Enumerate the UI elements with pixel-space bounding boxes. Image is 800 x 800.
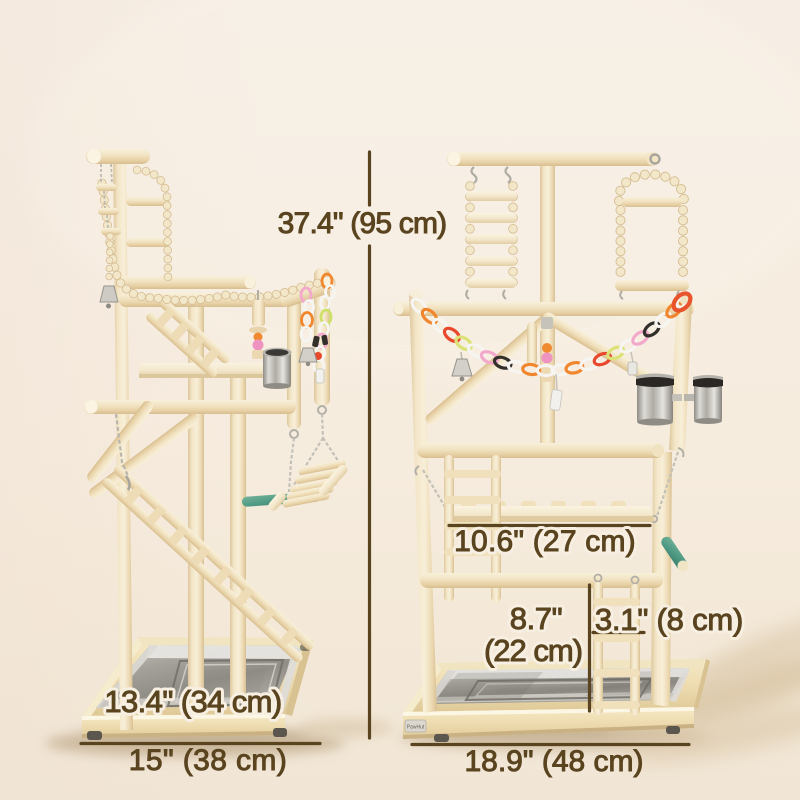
svg-text:37.4" (95 cm): 37.4" (95 cm) [278,207,447,240]
svg-text:8.7": 8.7" [510,601,563,636]
svg-text:18.9" (48 cm): 18.9" (48 cm) [464,745,643,778]
svg-text:PawHut: PawHut [407,725,425,731]
svg-text:10.6" (27 cm): 10.6" (27 cm) [454,525,636,558]
svg-text:(22 cm): (22 cm) [484,633,582,668]
svg-text:15" (38 cm): 15" (38 cm) [129,744,287,777]
svg-text:13.4" (34 cm): 13.4" (34 cm) [104,684,281,719]
svg-text:3.1" (8 cm): 3.1" (8 cm) [595,602,743,637]
